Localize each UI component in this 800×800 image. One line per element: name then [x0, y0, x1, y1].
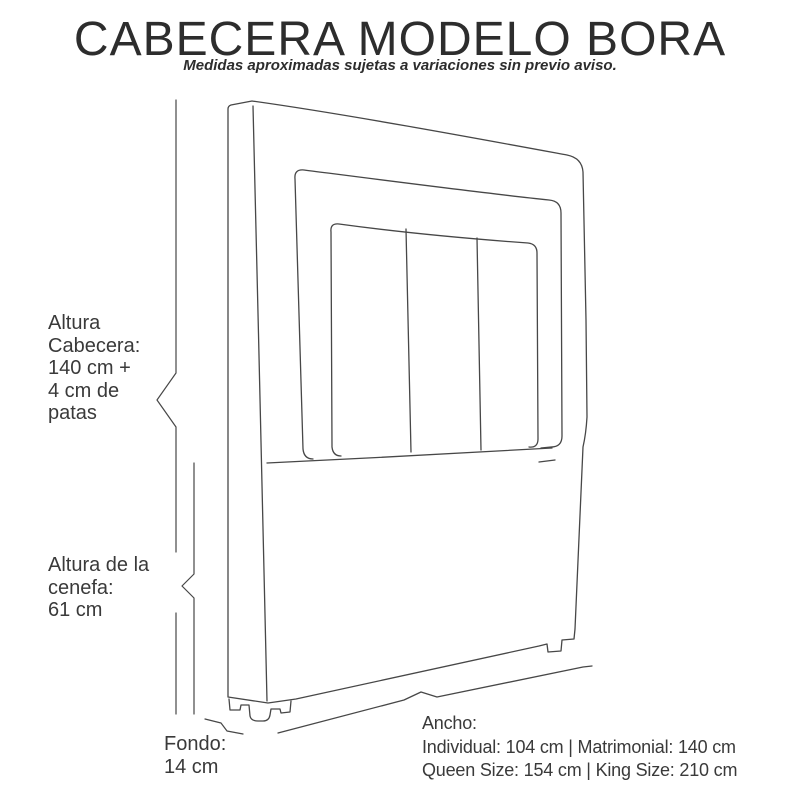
headboard-panel-line — [331, 224, 538, 456]
depth-dimension-line — [205, 719, 243, 734]
headboard-outline — [228, 101, 587, 703]
channel-line-1 — [406, 229, 411, 452]
headboard-front-left-edge — [253, 106, 267, 701]
spec-sheet-page: CABECERA MODELO BORA Medidas aproximadas… — [0, 0, 800, 800]
ancho-sizes-line2: Queen Size: 154 cm | King Size: 210 cm — [422, 759, 737, 783]
ancho-title: Ancho: — [422, 712, 737, 736]
altura-cenefa-label: Altura de la cenefa: 61 cm — [48, 554, 149, 622]
channel-line-2 — [477, 238, 481, 450]
cenefa-seam-line — [267, 448, 552, 463]
fondo-label: Fondo: 14 cm — [164, 733, 226, 778]
ancho-sizes-line1: Individual: 104 cm | Matrimonial: 140 cm — [422, 736, 737, 760]
height-dimension-line — [157, 100, 176, 714]
cenefa-dimension-line — [182, 463, 194, 714]
headboard-border-line — [295, 170, 562, 459]
stitch-dash — [539, 460, 555, 462]
altura-cabecera-label: Altura Cabecera: 140 cm + 4 cm de patas — [48, 312, 140, 425]
ancho-label-block: Ancho: Individual: 104 cm | Matrimonial:… — [422, 712, 737, 783]
